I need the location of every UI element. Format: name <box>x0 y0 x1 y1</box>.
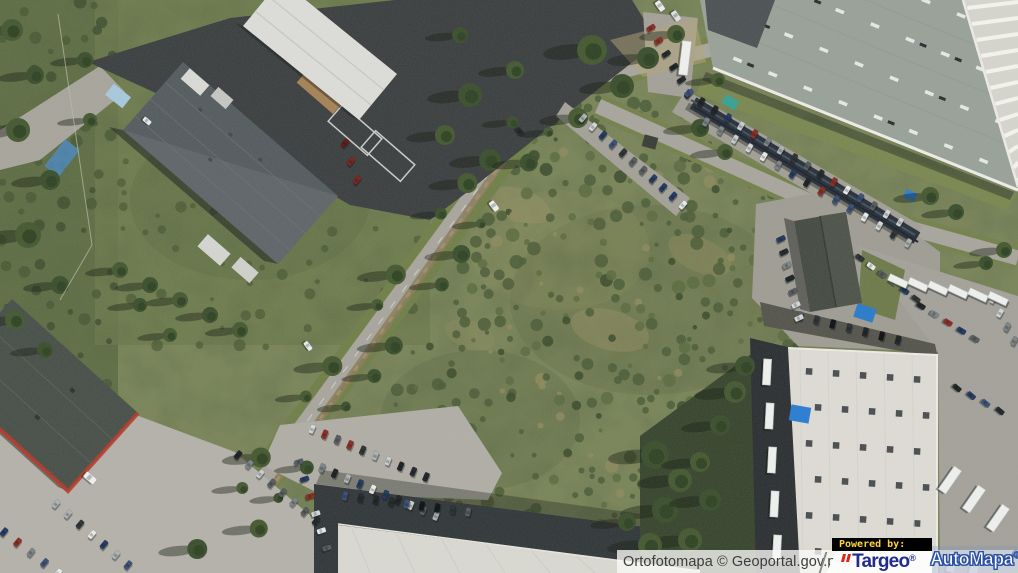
logo-separator <box>819 552 828 573</box>
targeo-mark-icon <box>842 554 851 562</box>
aerial-imagery <box>0 0 1018 573</box>
automapa-logo-text: AutoMapa <box>930 549 1013 570</box>
map-viewport[interactable]: Ortofotomapa © Geoportal.gov.pl Powered … <box>0 0 1018 573</box>
targeo-logo[interactable]: Targeo ® <box>826 551 932 573</box>
powered-by-label: Powered by: <box>832 538 932 551</box>
branding-block: Powered by: Targeo ® AutoMapa ® <box>820 538 1018 573</box>
photo-grain <box>0 0 1018 573</box>
targeo-registered-mark: ® <box>909 553 916 563</box>
automapa-logo[interactable]: AutoMapa ® <box>932 546 1018 573</box>
targeo-logo-text: Targeo <box>852 551 909 573</box>
automapa-registered-mark: ® <box>1013 550 1018 560</box>
attribution-text: Ortofotomapa © Geoportal.gov.pl <box>617 554 839 570</box>
